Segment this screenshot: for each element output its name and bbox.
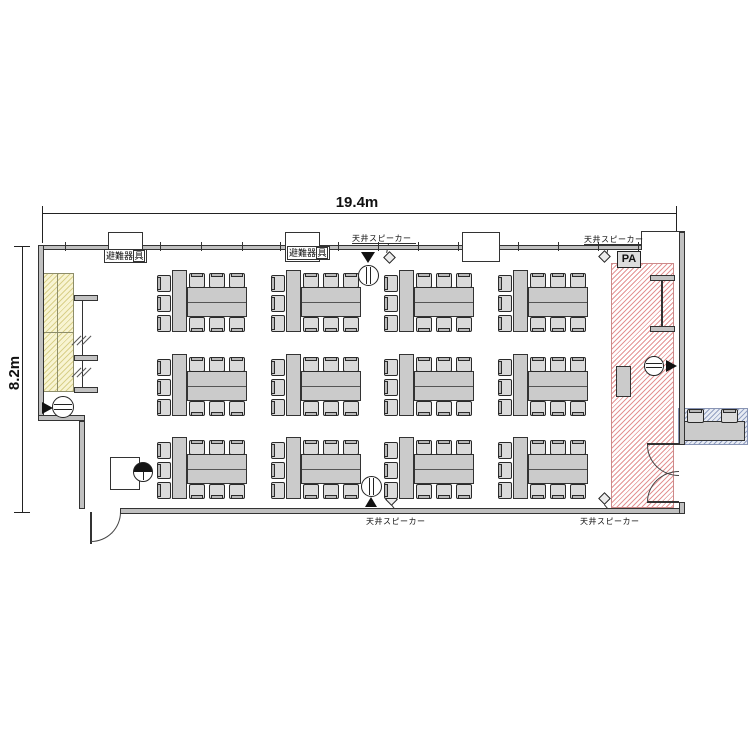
long-table-horizontal (414, 287, 474, 317)
chair (303, 484, 319, 499)
chair (189, 401, 205, 416)
chair-backrest (438, 412, 450, 416)
chair (271, 399, 285, 416)
chair-backrest (325, 357, 337, 361)
pa-label: PA (617, 251, 641, 268)
chair (384, 462, 398, 479)
chair (498, 442, 512, 459)
chair (209, 440, 225, 455)
table-group (157, 437, 248, 499)
chair (530, 317, 546, 332)
table-group (157, 270, 248, 332)
table-divider (188, 302, 246, 303)
window-mullion-tick (458, 242, 459, 251)
height-dimension-tick-bottom (14, 512, 30, 513)
chair (271, 359, 285, 376)
ceiling-speaker-label-underline-top (352, 243, 416, 244)
long-table-horizontal (414, 454, 474, 484)
table-group (384, 270, 475, 332)
chair (303, 401, 319, 416)
long-table-vertical (172, 437, 187, 499)
chair (530, 484, 546, 499)
chair-backrest (191, 440, 203, 444)
chair (456, 401, 472, 416)
chair (271, 315, 285, 332)
wall-speaker-icon-left (52, 396, 74, 418)
chair-backrest (458, 357, 470, 361)
evac-label-text: 避難器 (289, 248, 316, 258)
chair-backrest (498, 317, 502, 330)
wall-right-lower (679, 502, 685, 514)
chair (209, 401, 225, 416)
chair (550, 484, 566, 499)
chair-backrest (498, 361, 502, 374)
ceiling-fixture-diamond-bottom-right (598, 492, 611, 505)
chair (550, 401, 566, 416)
chair-backrest (305, 440, 317, 444)
ceiling-speaker-label-underline-top-right (584, 244, 641, 245)
chair-backrest (231, 357, 243, 361)
chair (498, 462, 512, 479)
window-mullion-tick (338, 242, 339, 251)
chair (550, 357, 566, 372)
long-table-vertical (513, 270, 528, 332)
height-dimension-tick-top (14, 246, 30, 247)
window-mullion-tick (418, 242, 419, 251)
window-mullion-tick (558, 242, 559, 251)
chair-backrest (211, 412, 223, 416)
chair-backrest (345, 412, 357, 416)
chair (498, 482, 512, 499)
speaker-direction-triangle-right-wall (666, 360, 677, 372)
chair-backrest (532, 328, 544, 332)
chair (229, 401, 245, 416)
chair-backrest (231, 273, 243, 277)
chair-backrest (384, 297, 388, 310)
long-table-horizontal (414, 371, 474, 401)
chair-backrest (157, 444, 161, 457)
chair (157, 462, 171, 479)
chair-backrest (157, 464, 161, 477)
wall-notch-top-line (641, 231, 685, 232)
chair (189, 484, 205, 499)
chair (157, 379, 171, 396)
long-table-horizontal (301, 454, 361, 484)
chair-backrest (552, 357, 564, 361)
chair-backrest (191, 273, 203, 277)
chair-backrest (305, 328, 317, 332)
chair (303, 317, 319, 332)
table-group (384, 437, 475, 499)
chair-backrest (418, 357, 430, 361)
chair (157, 359, 171, 376)
partition-track-bar-2 (74, 355, 98, 361)
chair (157, 482, 171, 499)
chair (384, 359, 398, 376)
ceiling-fixture-diamond-top (383, 251, 396, 264)
chair (436, 401, 452, 416)
table-divider (188, 469, 246, 470)
chair (530, 273, 546, 288)
chair (530, 357, 546, 372)
window-mullion-tick (280, 242, 281, 251)
chair (271, 462, 285, 479)
whiteboard-divider-horizontal (41, 332, 73, 333)
table-group (271, 270, 362, 332)
wall-bottom (120, 508, 685, 514)
chair-backrest (498, 401, 502, 414)
window-mullion-tick (518, 242, 519, 251)
partition-track-bar-1 (74, 295, 98, 301)
chair (416, 401, 432, 416)
chair-backrest (384, 277, 388, 290)
chair (157, 315, 171, 332)
chair (456, 357, 472, 372)
table-divider (302, 386, 360, 387)
chair (498, 379, 512, 396)
chair-backrest (438, 328, 450, 332)
chair (384, 295, 398, 312)
chair-backrest (532, 495, 544, 499)
partition-track-bar-3 (74, 387, 98, 393)
table-divider (415, 302, 473, 303)
window-mullion-tick (65, 242, 66, 251)
chair-backrest (723, 409, 736, 413)
chair (229, 357, 245, 372)
chair-backrest (572, 357, 584, 361)
wall-speaker-icon-right (644, 356, 664, 376)
evacuation-equipment-label-2: 避難器具 (287, 246, 330, 260)
evacuation-equipment-label-1: 避難器具 (104, 249, 147, 263)
chair (570, 401, 586, 416)
chair-backrest (191, 412, 203, 416)
chair (570, 440, 586, 455)
chair-backrest (384, 401, 388, 414)
chair-backrest (552, 273, 564, 277)
chair-backrest (384, 317, 388, 330)
chair (436, 484, 452, 499)
chair-backrest (305, 495, 317, 499)
chair-backrest (325, 412, 337, 416)
chair-backrest (271, 381, 275, 394)
table-group (498, 354, 589, 416)
chair (550, 440, 566, 455)
long-table-vertical (286, 354, 301, 416)
table-group (271, 354, 362, 416)
entrance-door-arc-left (91, 512, 121, 542)
chair-backrest (498, 484, 502, 497)
chair-backrest (211, 328, 223, 332)
chair-backrest (157, 381, 161, 394)
table-divider (415, 386, 473, 387)
chair (416, 484, 432, 499)
chair-backrest (211, 273, 223, 277)
chair-backrest (271, 401, 275, 414)
chair-backrest (572, 328, 584, 332)
chair-backrest (498, 464, 502, 477)
chair (436, 317, 452, 332)
whiteboard (40, 273, 74, 392)
ceiling-fixture-diamond-top-right (598, 250, 611, 263)
chair (498, 359, 512, 376)
window-mullion-tick (242, 242, 243, 251)
long-table-horizontal (528, 454, 588, 484)
chair (157, 442, 171, 459)
table-divider (188, 386, 246, 387)
chair-backrest (305, 412, 317, 416)
chair-backrest (458, 273, 470, 277)
chair (323, 440, 339, 455)
chair-backrest (572, 273, 584, 277)
chair-backrest (418, 440, 430, 444)
chair-backrest (572, 412, 584, 416)
chair-backrest (157, 401, 161, 414)
chair (157, 275, 171, 292)
podium (616, 366, 631, 397)
chair-backrest (689, 409, 702, 413)
chair (271, 442, 285, 459)
height-dimension-label: 8.2m (6, 353, 22, 393)
chair (570, 317, 586, 332)
chair-backrest (231, 412, 243, 416)
chair (189, 440, 205, 455)
table-divider (302, 302, 360, 303)
chair (229, 317, 245, 332)
chair-backrest (552, 412, 564, 416)
equipment-speaker-icon (133, 462, 153, 482)
chair (498, 295, 512, 312)
chair (498, 399, 512, 416)
projection-screen-stem (661, 281, 663, 326)
chair-backrest (345, 273, 357, 277)
chair-backrest (157, 297, 161, 310)
chair-backrest (438, 273, 450, 277)
chair (456, 317, 472, 332)
chair (456, 440, 472, 455)
chair (189, 317, 205, 332)
chair-backrest (458, 495, 470, 499)
chair (456, 273, 472, 288)
chair-backrest (325, 495, 337, 499)
long-table-horizontal (528, 371, 588, 401)
chair (229, 484, 245, 499)
wall-left-step-vertical (79, 421, 85, 509)
table-group (498, 437, 589, 499)
chair (271, 295, 285, 312)
table-divider (529, 469, 587, 470)
chair (303, 273, 319, 288)
long-table-vertical (286, 270, 301, 332)
chair (343, 484, 359, 499)
chair-backrest (231, 328, 243, 332)
chair (384, 275, 398, 292)
chair-backrest (231, 440, 243, 444)
chair (343, 273, 359, 288)
table-divider (302, 469, 360, 470)
chair-backrest (552, 495, 564, 499)
chair-backrest (438, 440, 450, 444)
chair-backrest (157, 317, 161, 330)
chair-backrest (384, 484, 388, 497)
chair-backrest (498, 381, 502, 394)
chair (343, 317, 359, 332)
chair-backrest (532, 273, 544, 277)
table-group (271, 437, 362, 499)
evac-label-boxed-char: 具 (316, 247, 328, 259)
chair (271, 482, 285, 499)
chair (343, 401, 359, 416)
chair-backrest (305, 273, 317, 277)
chair-backrest (552, 328, 564, 332)
table-divider (415, 469, 473, 470)
chair-backrest (438, 495, 450, 499)
chair (189, 273, 205, 288)
long-table-vertical (172, 354, 187, 416)
chair-backrest (271, 484, 275, 497)
width-dimension-label: 19.4m (307, 194, 407, 211)
chair (384, 442, 398, 459)
long-table-horizontal (301, 371, 361, 401)
console-table (682, 421, 745, 441)
chair-backrest (211, 495, 223, 499)
long-table-vertical (399, 270, 414, 332)
chair (498, 275, 512, 292)
chair (416, 440, 432, 455)
chair (570, 273, 586, 288)
table-group (384, 354, 475, 416)
chair-backrest (572, 495, 584, 499)
chair (229, 440, 245, 455)
chair-backrest (191, 495, 203, 499)
table-divider (529, 386, 587, 387)
chair (323, 357, 339, 372)
chair-backrest (231, 495, 243, 499)
window-mullion-tick (201, 242, 202, 251)
chair (189, 357, 205, 372)
chair-backrest (211, 440, 223, 444)
chair-backrest (552, 440, 564, 444)
chair-backrest (271, 297, 275, 310)
long-table-vertical (399, 437, 414, 499)
chair (229, 273, 245, 288)
chair (271, 379, 285, 396)
chair (384, 379, 398, 396)
chair-backrest (384, 361, 388, 374)
chair (209, 273, 225, 288)
chair (209, 317, 225, 332)
chair-backrest (325, 273, 337, 277)
long-table-horizontal (187, 287, 247, 317)
table-group (498, 270, 589, 332)
evac-label-text: 避難器 (106, 251, 133, 261)
chair (384, 315, 398, 332)
chair-backrest (438, 357, 450, 361)
chair-backrest (325, 328, 337, 332)
chair-backrest (325, 440, 337, 444)
chair-backrest (498, 297, 502, 310)
chair (436, 440, 452, 455)
chair (550, 273, 566, 288)
chair-backrest (498, 444, 502, 457)
chair-backrest (572, 440, 584, 444)
long-table-horizontal (301, 287, 361, 317)
chair (343, 357, 359, 372)
width-dimension-line (42, 213, 676, 214)
chair-backrest (157, 361, 161, 374)
chair-backrest (384, 464, 388, 477)
chair (416, 273, 432, 288)
chair-backrest (418, 273, 430, 277)
chair-backrest (157, 484, 161, 497)
chair (157, 399, 171, 416)
chair-backrest (345, 357, 357, 361)
chair-backrest (384, 381, 388, 394)
width-dimension-tick-right (676, 206, 677, 232)
chair-backrest (271, 277, 275, 290)
chair-backrest (271, 444, 275, 457)
chair (550, 317, 566, 332)
ceiling-speaker-label-bottom: 天井スピーカー (366, 516, 426, 527)
chair (323, 317, 339, 332)
long-table-horizontal (187, 371, 247, 401)
table-divider (529, 302, 587, 303)
chair-backrest (271, 464, 275, 477)
chair-backrest (345, 328, 357, 332)
wall-left (38, 245, 44, 421)
long-table-vertical (286, 437, 301, 499)
chair (209, 357, 225, 372)
ceiling-speaker-icon-bottom (361, 476, 382, 497)
long-table-horizontal (528, 287, 588, 317)
projection-screen-bottom-cap (650, 326, 675, 332)
chair-backrest (345, 495, 357, 499)
speaker-direction-triangle-up (365, 497, 377, 507)
chair-backrest (458, 328, 470, 332)
chair-backrest (532, 412, 544, 416)
evac-label-boxed-char: 具 (133, 250, 145, 262)
table-group (157, 354, 248, 416)
long-table-vertical (513, 354, 528, 416)
chair (303, 440, 319, 455)
chair (271, 275, 285, 292)
window-bay-3 (462, 232, 500, 262)
chair-backrest (271, 317, 275, 330)
width-dimension-tick-left (42, 206, 43, 243)
wall-right-upper (679, 232, 685, 445)
long-table-vertical (513, 437, 528, 499)
chair (416, 357, 432, 372)
chair (343, 440, 359, 455)
speaker-direction-triangle-down (361, 252, 375, 263)
long-table-horizontal (187, 454, 247, 484)
chair-backrest (418, 412, 430, 416)
chair (498, 315, 512, 332)
chair (570, 484, 586, 499)
chair-backrest (458, 440, 470, 444)
chair-backrest (157, 277, 161, 290)
chair (323, 273, 339, 288)
floor-plan: 19.4m 8.2m 避難器具 避難器具 PA 天井スピーカー (0, 0, 750, 750)
chair (323, 401, 339, 416)
chair-backrest (211, 357, 223, 361)
chair (323, 484, 339, 499)
chair (530, 440, 546, 455)
console-chair (721, 409, 738, 423)
window-mullion-tick (160, 242, 161, 251)
chair (570, 357, 586, 372)
ceiling-speaker-label-bottom-right: 天井スピーカー (580, 516, 640, 527)
chair-backrest (498, 277, 502, 290)
